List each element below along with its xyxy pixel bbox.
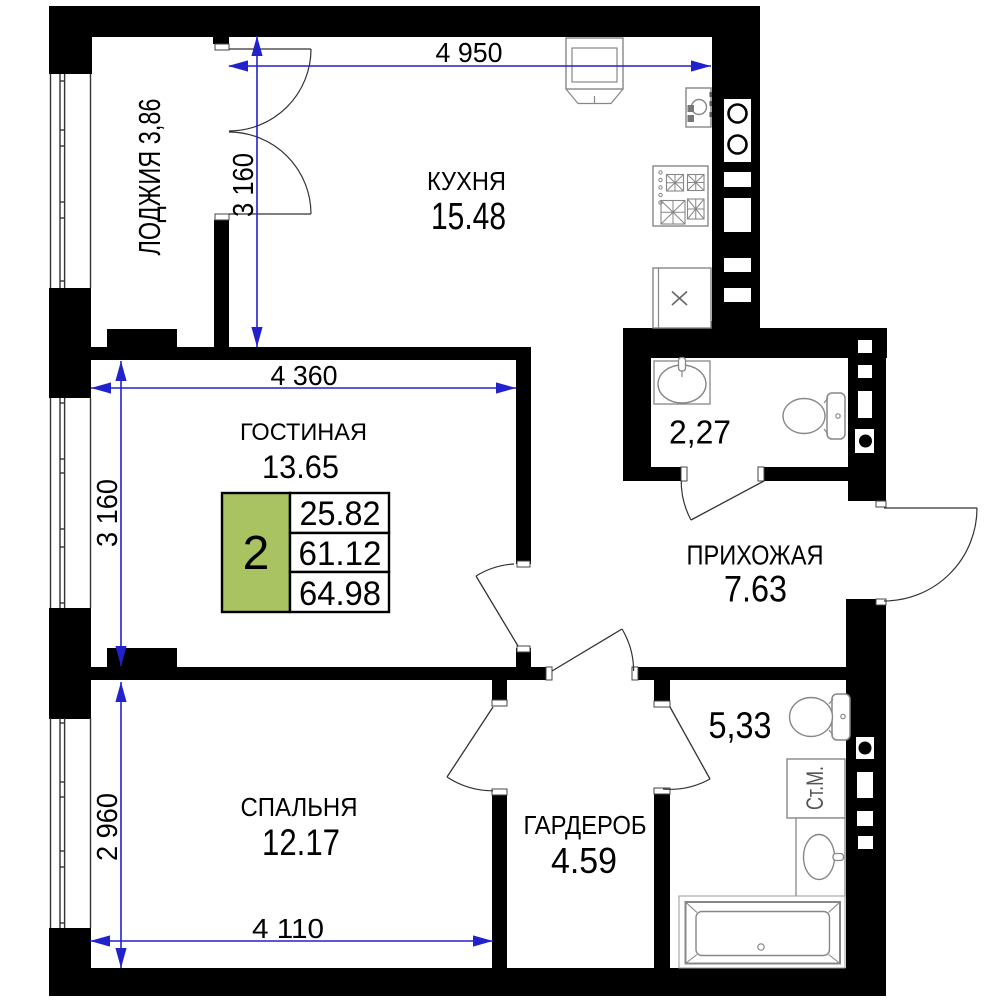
svg-text:ЛОДЖИЯ 3,86: ЛОДЖИЯ 3,86 [132, 99, 167, 256]
svg-text:ГОСТИНАЯ: ГОСТИНАЯ [240, 419, 367, 446]
svg-text:ГАРДЕРОБ: ГАРДЕРОБ [524, 810, 647, 840]
svg-text:КУХНЯ: КУХНЯ [427, 166, 506, 196]
svg-text:4 950: 4 950 [436, 37, 503, 68]
svg-text:15.48: 15.48 [431, 196, 506, 238]
svg-text:Ст.М.: Ст.М. [802, 766, 829, 810]
svg-text:3 160: 3 160 [228, 153, 260, 217]
svg-text:5,33: 5,33 [709, 705, 772, 746]
svg-text:2,27: 2,27 [669, 414, 731, 451]
svg-text:25.82: 25.82 [300, 495, 381, 533]
svg-text:64.98: 64.98 [299, 575, 381, 613]
svg-text:СПАЛЬНЯ: СПАЛЬНЯ [241, 792, 358, 822]
svg-text:4.59: 4.59 [551, 840, 617, 881]
svg-text:61.12: 61.12 [299, 535, 382, 573]
svg-text:4 360: 4 360 [271, 360, 338, 391]
svg-text:3 160: 3 160 [92, 479, 124, 547]
svg-text:4 110: 4 110 [252, 913, 324, 944]
svg-text:13.65: 13.65 [262, 449, 339, 485]
svg-text:7.63: 7.63 [724, 569, 787, 610]
svg-text:2 960: 2 960 [92, 793, 124, 861]
svg-text:ПРИХОЖАЯ: ПРИХОЖАЯ [687, 540, 824, 571]
svg-text:2: 2 [243, 527, 270, 580]
svg-text:12.17: 12.17 [262, 822, 340, 863]
